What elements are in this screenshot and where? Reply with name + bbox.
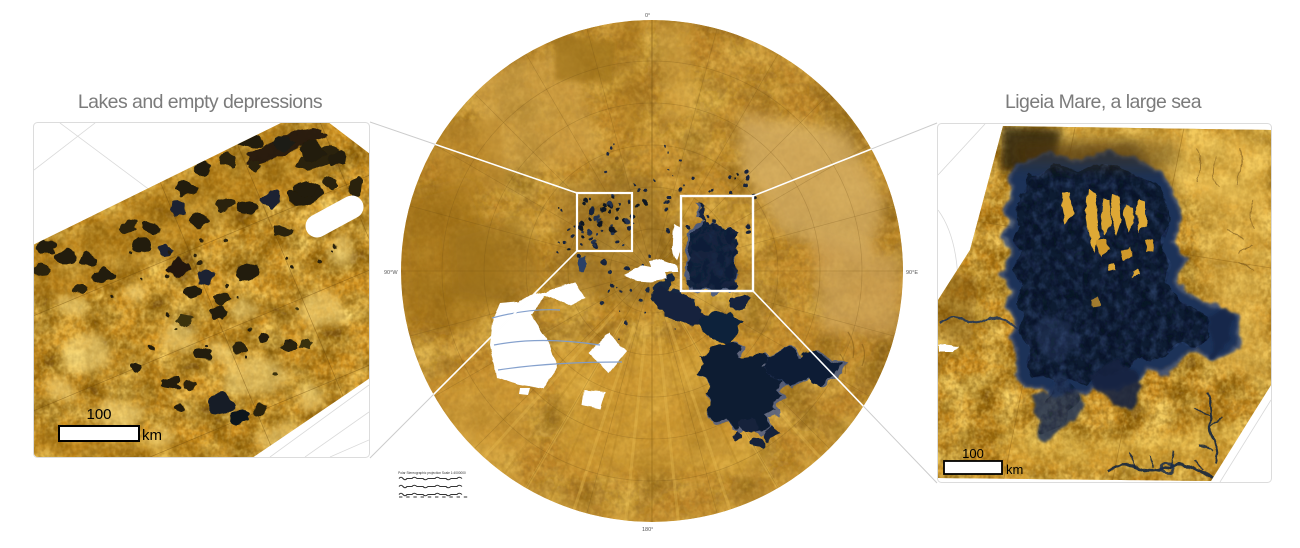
- svg-text:90°E: 90°E: [906, 270, 918, 276]
- svg-text:km: km: [142, 427, 162, 444]
- svg-text:Polar Stereographic projection: Polar Stereographic projection Scale 1:4…: [398, 471, 466, 475]
- svg-text:90°W: 90°W: [384, 270, 398, 276]
- svg-text:180°: 180°: [642, 527, 653, 533]
- svg-text:Lakes and empty depressions: Lakes and empty depressions: [78, 91, 323, 113]
- svg-text:100: 100: [86, 406, 111, 423]
- svg-text:0°: 0°: [645, 13, 650, 19]
- svg-text:100: 100: [962, 446, 984, 461]
- svg-text:km: km: [1006, 462, 1023, 477]
- svg-text:Ligeia Mare, a large sea: Ligeia Mare, a large sea: [1005, 91, 1202, 113]
